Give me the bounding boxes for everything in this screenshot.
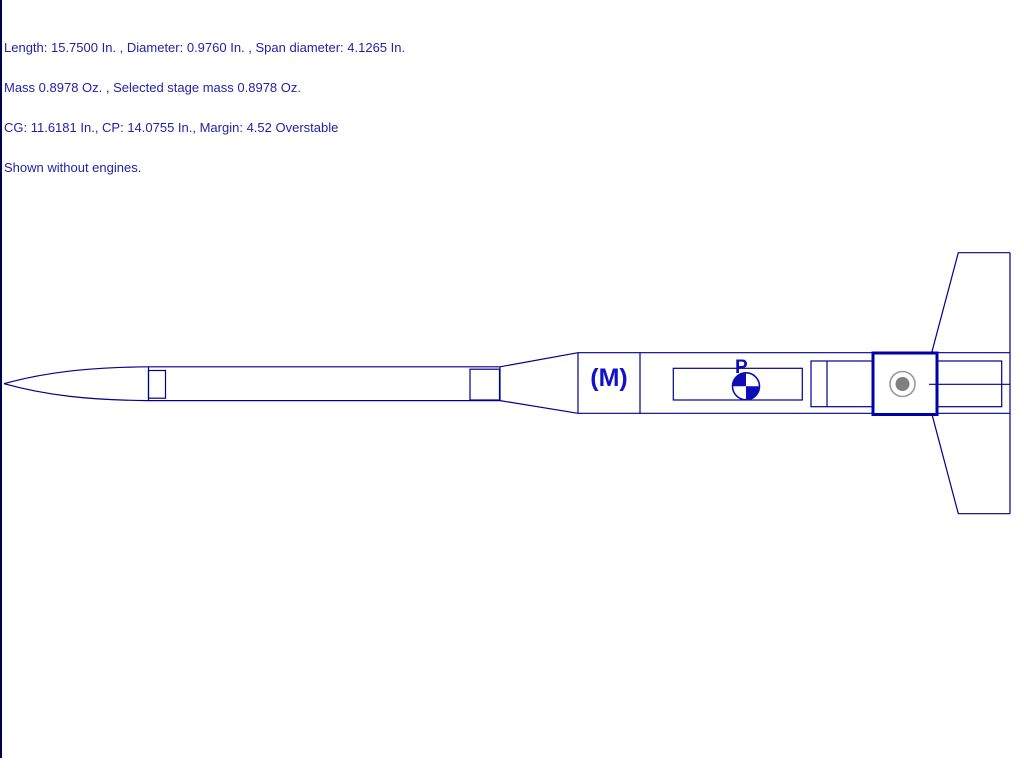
rocksim-design-view: Length: 15.7500 In. , Diameter: 0.9760 I… bbox=[0, 0, 1024, 768]
cg-marker-quadrant-bottomright bbox=[746, 386, 760, 400]
nose-cone-shoulder[interactable] bbox=[149, 371, 166, 399]
cg-marker-flag-label: P bbox=[735, 357, 748, 378]
transition[interactable] bbox=[500, 353, 578, 414]
tube-coupler[interactable] bbox=[470, 369, 500, 400]
nose-cone-bottom-curve[interactable] bbox=[4, 384, 149, 401]
fin-upper[interactable] bbox=[932, 253, 1010, 353]
fin-set[interactable] bbox=[932, 253, 1010, 514]
nose-cone-top-curve[interactable] bbox=[4, 367, 149, 384]
motor-tube-label: (M) bbox=[590, 364, 627, 392]
cp-marker-dot bbox=[896, 377, 910, 391]
fin-lower[interactable] bbox=[932, 413, 1010, 513]
rocket-drawing-canvas[interactable]: (M) P bbox=[0, 0, 1024, 768]
nose-cone[interactable] bbox=[4, 367, 166, 401]
forward-body-tube[interactable] bbox=[149, 367, 501, 401]
transition-top-edge[interactable] bbox=[500, 353, 578, 367]
cg-marker: P bbox=[733, 357, 760, 400]
transition-bottom-edge[interactable] bbox=[500, 401, 578, 414]
selected-component-highlight[interactable] bbox=[873, 353, 1010, 415]
main-body-tube[interactable] bbox=[578, 353, 1010, 414]
